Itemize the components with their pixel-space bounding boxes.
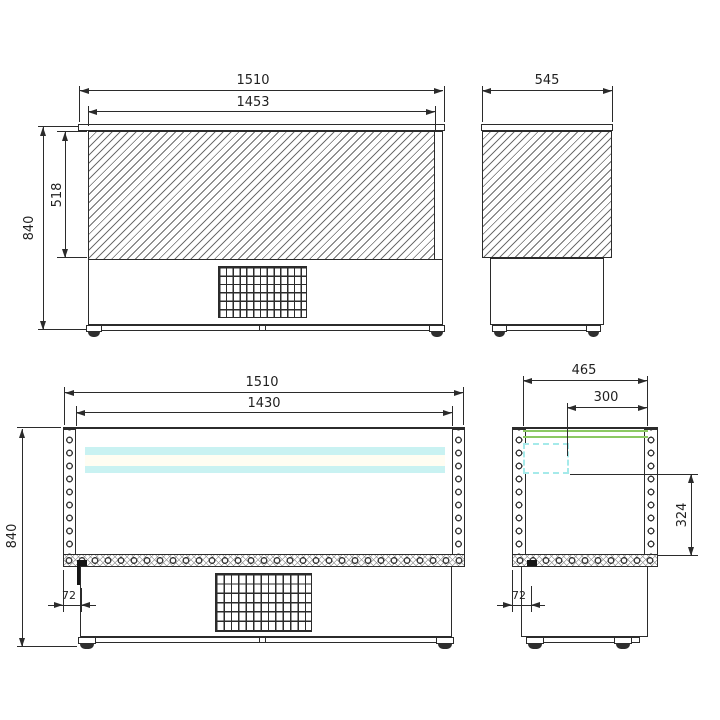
dim-line: [691, 474, 692, 556]
dim-side-drain-offset: 72: [507, 590, 531, 602]
ext-line: [647, 376, 648, 426]
arrow: [523, 378, 532, 384]
gn-pan-outline: [523, 443, 569, 474]
arrow: [567, 405, 576, 411]
worktop-underside-line: [523, 436, 648, 438]
dim-line: [523, 380, 647, 381]
base-outline: [521, 566, 648, 637]
arrow: [531, 602, 540, 608]
arrow: [638, 405, 647, 411]
insulation-wall-right: [644, 429, 658, 555]
left-foot-pad: [528, 643, 542, 649]
ext-line: [570, 474, 698, 475]
side-section-view: 465 300 324 72: [0, 0, 720, 720]
dim-line: [567, 407, 647, 408]
ext-line: [531, 586, 532, 612]
worktop-surface-line: [523, 430, 648, 432]
arrow: [638, 378, 647, 384]
drawing-canvas: 1510 1453 518 840: [0, 0, 720, 720]
dim-inner-height: 324: [676, 495, 690, 535]
arrow: [503, 602, 512, 608]
dim-top-depth: 465: [564, 364, 604, 378]
arrow: [688, 547, 694, 556]
arrow: [688, 474, 694, 483]
tub-top-edge: [512, 427, 658, 429]
dim-opening-depth: 300: [586, 391, 626, 405]
right-foot-pad: [616, 643, 630, 649]
